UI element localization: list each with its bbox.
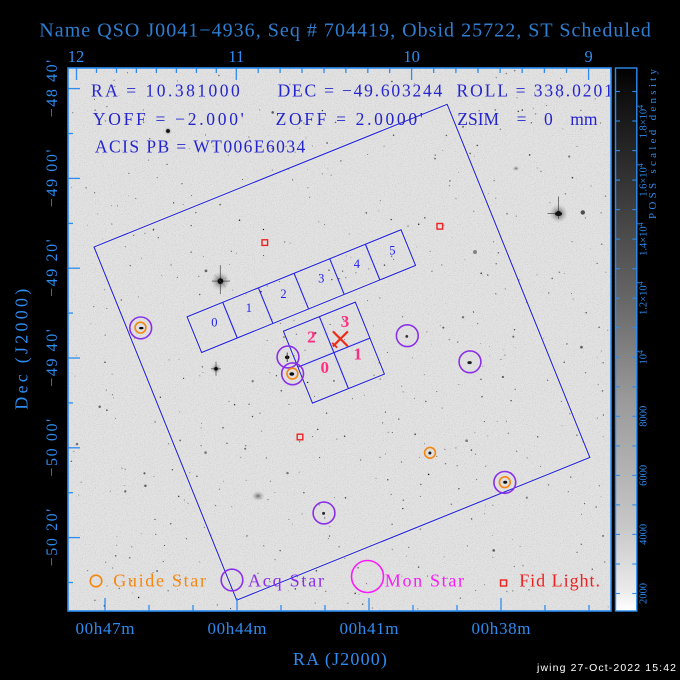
svg-text:ROLL = 338.0201: ROLL = 338.0201 [457,81,613,101]
svg-text:ZOFF = 2.0000': ZOFF = 2.0000' [276,109,423,129]
svg-text:Mon Star: Mon Star [385,571,464,591]
svg-text:Dec (J2000): Dec (J2000) [12,289,33,410]
svg-text:2000: 2000 [639,583,650,604]
svg-text:POSS scaled density: POSS scaled density [647,68,659,219]
svg-text:1.2×104: 1.2×104 [636,281,650,315]
svg-text:jwing 27-Oct-2022 15:42: jwing 27-Oct-2022 15:42 [536,662,676,674]
svg-text:Name QSO J0041−4936, Seq # 704: Name QSO J0041−4936, Seq # 704419, Obsid… [39,20,651,42]
svg-text:3: 3 [341,312,350,331]
svg-text:00h47m: 00h47m [76,619,135,638]
svg-text:1: 1 [246,301,252,315]
svg-text:Fid Light.: Fid Light. [519,571,600,591]
svg-text:ZSIM = 0 mm: ZSIM = 0 mm [457,109,598,129]
svg-text:1: 1 [353,345,362,364]
svg-text:2: 2 [307,327,316,346]
svg-text:00h44m: 00h44m [208,619,267,638]
svg-text:10: 10 [403,47,420,66]
svg-text:5: 5 [389,244,395,258]
svg-text:Acq Star: Acq Star [248,571,324,591]
svg-text:RA (J2000): RA (J2000) [293,649,387,670]
svg-text:00h38m: 00h38m [472,619,531,638]
svg-text:ACIS PB = WT006E6034: ACIS PB = WT006E6034 [95,137,306,157]
svg-text:8000: 8000 [639,406,650,427]
svg-text:0: 0 [211,316,217,330]
svg-text:3: 3 [318,272,324,286]
svg-text:4000: 4000 [639,524,650,545]
svg-text:12: 12 [68,47,85,66]
svg-text:YOFF = −2.000': YOFF = −2.000' [93,109,244,129]
svg-text:4: 4 [354,257,361,271]
svg-text:6000: 6000 [639,465,650,486]
svg-text:DEC = −49.603244: DEC = −49.603244 [278,81,443,101]
svg-text:2: 2 [280,287,286,301]
svg-text:00h41m: 00h41m [340,619,399,638]
svg-text:Guide Star: Guide Star [113,571,206,591]
svg-text:9: 9 [584,47,592,66]
svg-text:11: 11 [228,47,244,66]
svg-text:0: 0 [321,358,330,377]
svg-text:1.4×104: 1.4×104 [636,222,650,256]
